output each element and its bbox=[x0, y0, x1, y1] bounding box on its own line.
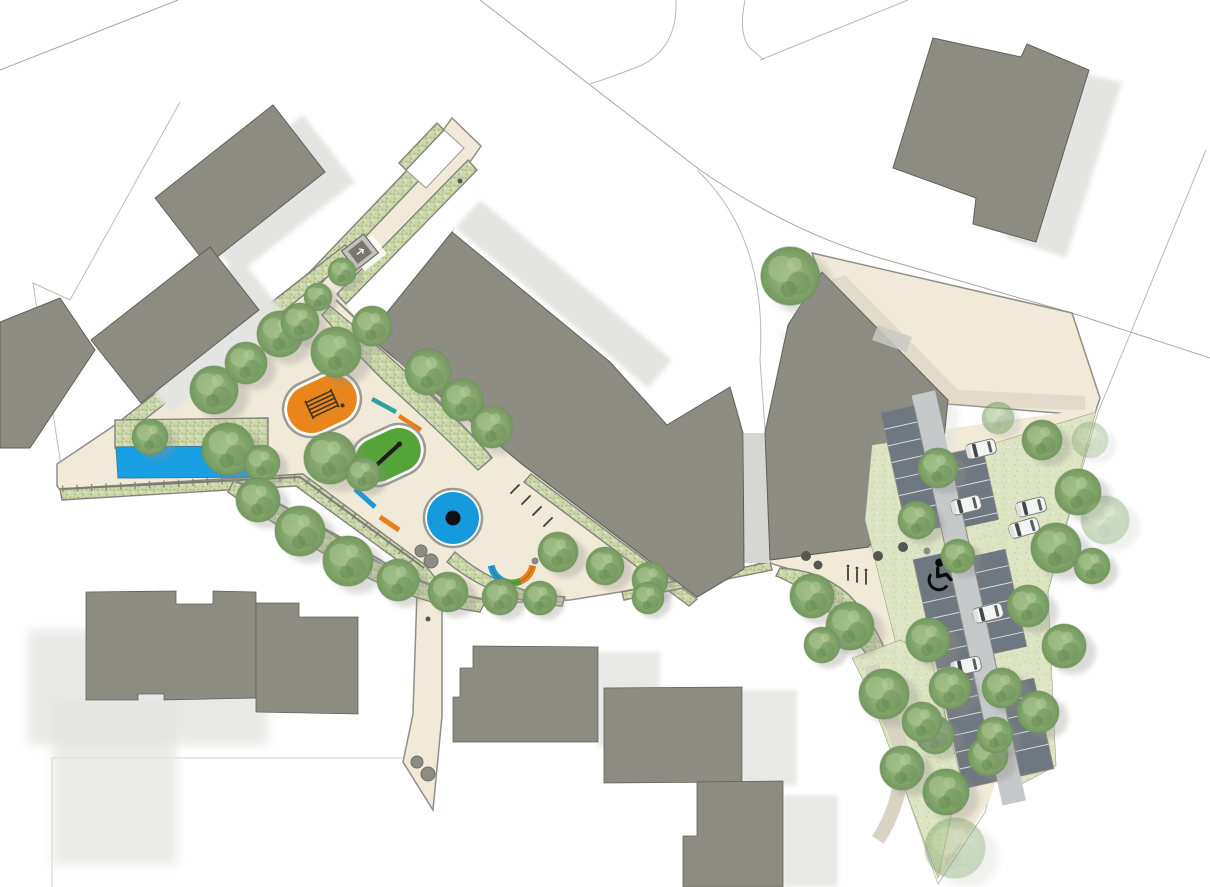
building-bottom-mid-b bbox=[604, 687, 742, 783]
blue-carousel-circle bbox=[424, 489, 482, 547]
building-bottom-right bbox=[683, 781, 783, 887]
building-bottom-mid-a bbox=[453, 646, 598, 742]
building-left-edge bbox=[0, 298, 95, 448]
building-bottom-left-b bbox=[256, 603, 358, 714]
site-plan-canvas bbox=[0, 0, 1210, 887]
site-plan-drawing bbox=[0, 0, 1210, 887]
building-bottom-left-a bbox=[86, 591, 256, 700]
